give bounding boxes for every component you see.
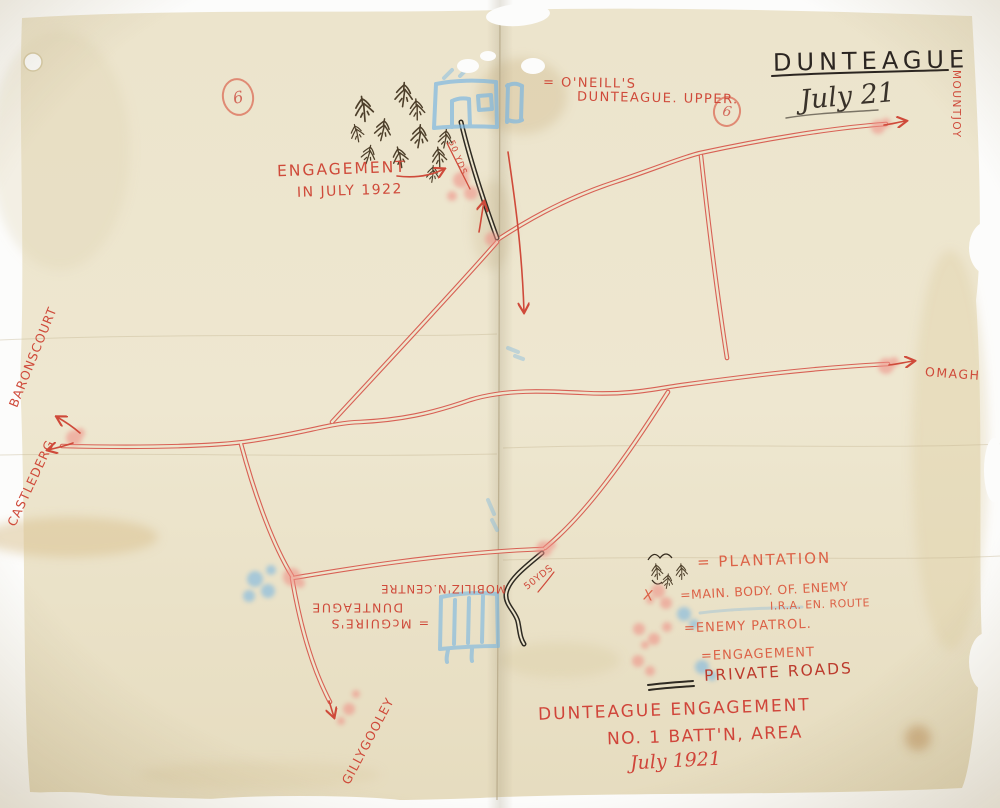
label-oneills-line2: DUNTEAGUE. UPPER. bbox=[577, 90, 739, 109]
page-title: DUNTEAGUE bbox=[773, 44, 970, 77]
label-mcguires-line2: DUNTEAGUE bbox=[311, 600, 403, 616]
label-engagement-line2: IN JULY 1922 bbox=[297, 181, 404, 202]
page-mark-left-number: 6 bbox=[231, 87, 245, 108]
vignette bbox=[0, 0, 1000, 808]
label-mcguires-line1: = McGUIRE'S bbox=[311, 616, 429, 632]
label-mountjoy: MOUNTJOY bbox=[949, 70, 962, 138]
legend-x-mark: X bbox=[642, 587, 654, 606]
map-drawing bbox=[0, 0, 1000, 808]
map-photo: DUNTEAGUE July 21 6 6 = O'NEILL'S DUNTEA… bbox=[0, 0, 1000, 808]
label-mcguires: = McGUIRE'S DUNTEAGUE bbox=[311, 600, 429, 631]
footer-line3: July 1921 bbox=[629, 748, 721, 776]
label-mobilization: MOBILIZ'N.CENTRE bbox=[380, 582, 506, 596]
